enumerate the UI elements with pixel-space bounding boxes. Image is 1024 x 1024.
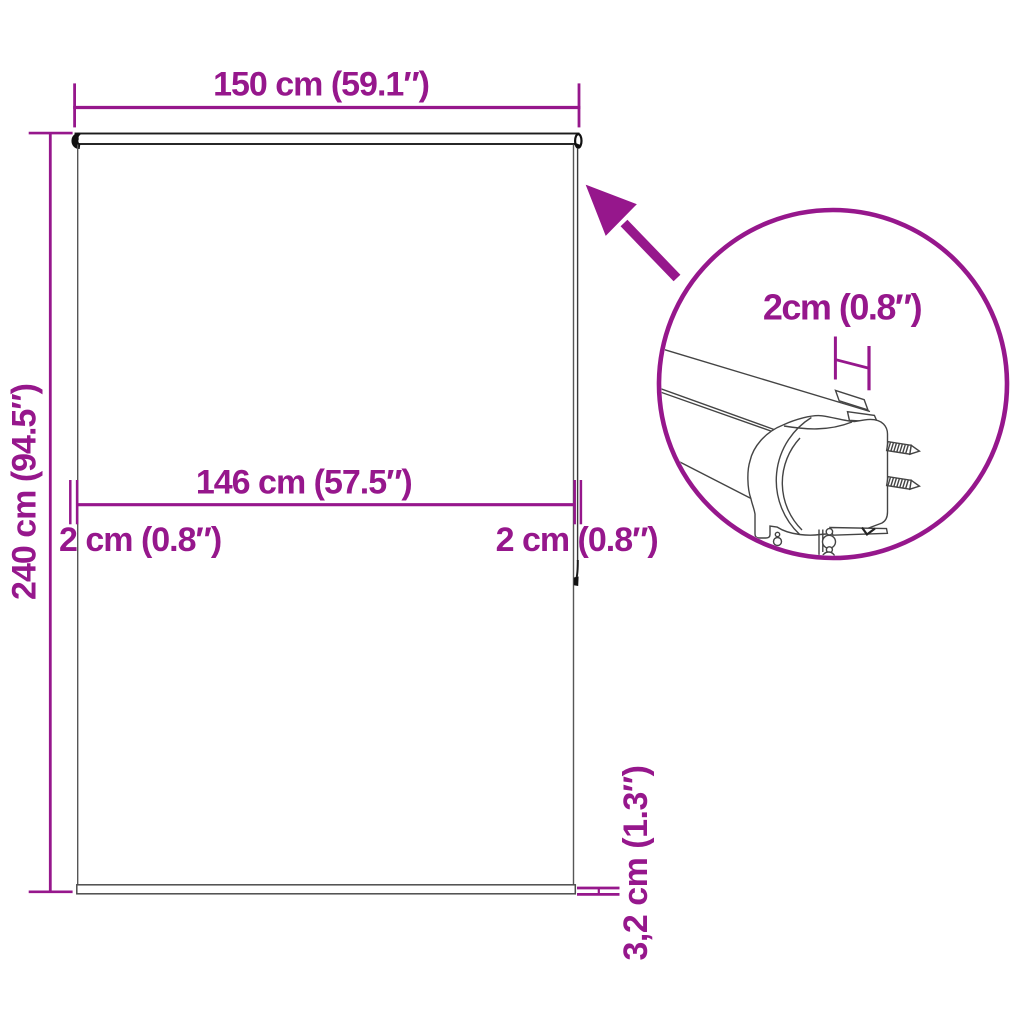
svg-text:146 cm (57.5″): 146 cm (57.5″) bbox=[196, 464, 412, 502]
svg-text:2 cm (0.8″): 2 cm (0.8″) bbox=[496, 521, 658, 559]
svg-text:3,2 cm (1.3″): 3,2 cm (1.3″) bbox=[617, 766, 655, 961]
svg-text:2cm (0.8″): 2cm (0.8″) bbox=[763, 287, 922, 328]
svg-text:150 cm (59.1″): 150 cm (59.1″) bbox=[213, 66, 429, 104]
svg-text:2 cm (0.8″): 2 cm (0.8″) bbox=[59, 521, 221, 559]
svg-text:240 cm (94.5″): 240 cm (94.5″) bbox=[6, 384, 44, 600]
